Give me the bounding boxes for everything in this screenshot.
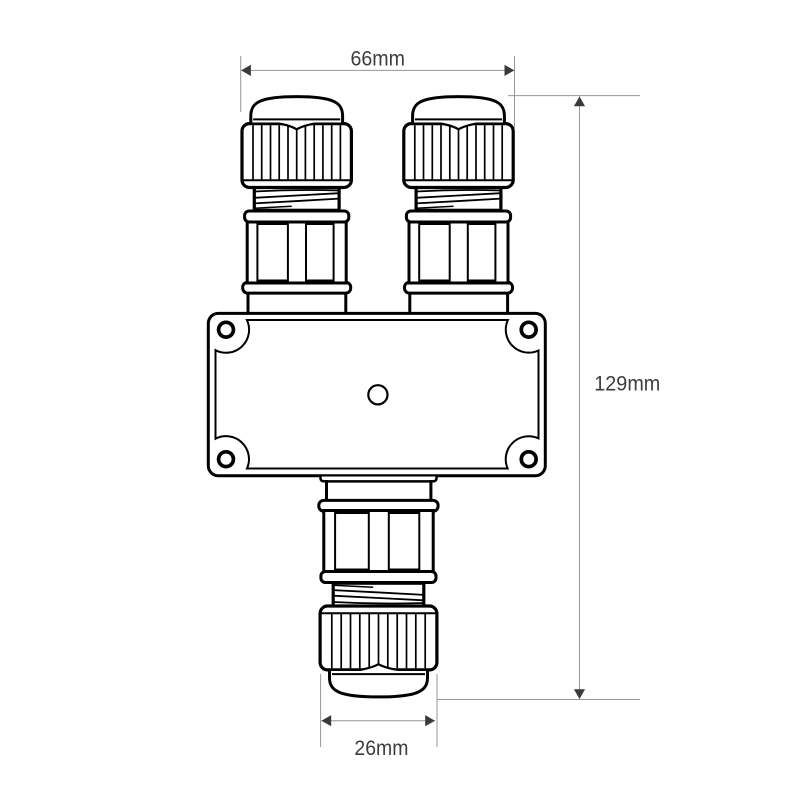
svg-text:66mm: 66mm (350, 47, 405, 71)
svg-text:26mm: 26mm (354, 736, 408, 760)
svg-text:129mm: 129mm (594, 371, 660, 395)
